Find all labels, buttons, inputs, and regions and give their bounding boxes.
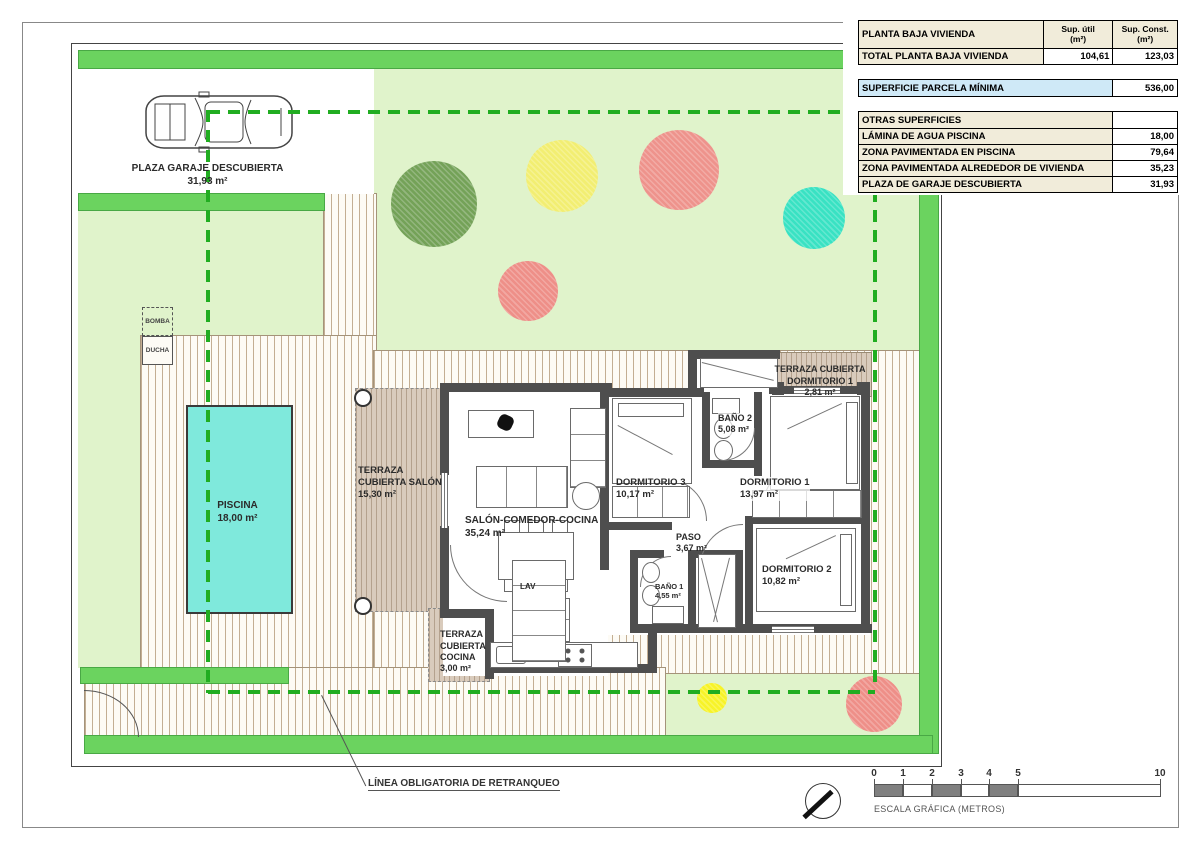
- table-section-vivienda: PLANTA BAJA VIVIENDA Sup. útil (m²) Sup.…: [858, 20, 1178, 65]
- floor-plan-sheet: BOMBA DUCHA: [0, 0, 1200, 850]
- setback-line-label: LÍNEA OBLIGATORIA DE RETRANQUEO: [368, 778, 560, 791]
- otras-row-value: 18,00: [1112, 129, 1177, 144]
- dorm1-label: DORMITORIO 1 13,97 m²: [740, 477, 810, 501]
- tree-circle: [783, 187, 845, 249]
- wall-segment: [648, 624, 657, 673]
- bano1-name: BAÑO 1: [655, 582, 683, 591]
- hedge-strip: [84, 735, 933, 754]
- tree-circle: [639, 130, 719, 210]
- dorm2-area: 10,82 m²: [762, 576, 832, 588]
- scale-tick-label: 2: [929, 768, 935, 779]
- pillow: [618, 403, 684, 417]
- scale-tick-label: 10: [1154, 768, 1165, 779]
- salon-label: SALÓN-COMEDOR-COCINA 35,24 m²: [465, 515, 598, 540]
- scale-segment: [874, 784, 903, 797]
- terrace-kitchen-area: 3,00 m²: [440, 663, 486, 674]
- terrace-kitchen-label: TERRAZA CUBIERTA COCINA 3,00 m²: [440, 618, 486, 686]
- table-section-parcela: SUPERFICIE PARCELA MÍNIMA 536,00: [858, 79, 1178, 97]
- bathroom-sink: [652, 606, 684, 624]
- bano2-area: 5,08 m²: [718, 424, 752, 435]
- dorm2-name: DORMITORIO 2: [762, 564, 832, 576]
- pump-box: BOMBA: [142, 307, 173, 336]
- pillow: [840, 534, 852, 606]
- pump-label: BOMBA: [145, 318, 170, 325]
- laundry-unit: [512, 560, 566, 662]
- dorm3-label: DORMITORIO 3 10,17 m²: [616, 477, 686, 501]
- scale-tick-label: 0: [871, 768, 877, 779]
- bathroom-sink: [712, 398, 740, 414]
- otras-row-value: 35,23: [1112, 161, 1177, 176]
- shower-box: DUCHA: [142, 336, 173, 365]
- pool-area: 18,00 m²: [186, 513, 289, 526]
- lav-name: LAV: [520, 582, 535, 591]
- dorm2-label: DORMITORIO 2 10,82 m²: [762, 564, 832, 588]
- dorm3-area: 10,17 m²: [616, 489, 686, 501]
- salon-name: SALÓN-COMEDOR-COCINA: [465, 515, 598, 528]
- garage-area: 31,93 m²: [95, 176, 320, 189]
- parcela-row: SUPERFICIE PARCELA MÍNIMA 536,00: [859, 80, 1177, 96]
- scale-tick-label: 4: [986, 768, 992, 779]
- bidet: [714, 440, 733, 461]
- setback-line-left: [206, 110, 210, 693]
- wall-segment: [600, 522, 672, 530]
- terrace-salon-area: 15,30 m²: [358, 489, 450, 501]
- wall-segment: [630, 550, 638, 633]
- wall-segment: [702, 392, 710, 468]
- pool-name: PISCINA: [186, 500, 289, 513]
- bano2-label: BAÑO 2 5,08 m²: [718, 413, 752, 436]
- parcela-label: SUPERFICIE PARCELA MÍNIMA: [859, 80, 1112, 96]
- hedge-strip: [78, 193, 325, 211]
- armchair: [572, 482, 600, 510]
- otras-row-label: ZONA PAVIMENTADA ALREDEDOR DE VIVIENDA: [859, 161, 1112, 176]
- paso-area: 3,67 m²: [676, 543, 707, 554]
- terrace-bedroom1-name: TERRAZA CUBIERTA DORMITORIO 1: [775, 364, 866, 385]
- tree-circle: [526, 140, 598, 212]
- scale-segment: [1018, 784, 1161, 797]
- otras-row-label: PLAZA DE GARAJE DESCUBIERTA: [859, 177, 1112, 192]
- terrace-column: [354, 389, 372, 407]
- otras-row: LÁMINA DE AGUA PISCINA 18,00: [859, 128, 1177, 144]
- scale-tick-label: 1: [900, 768, 906, 779]
- terrace-bedroom1-area: 2,81 m²: [768, 387, 872, 398]
- otras-row: ZONA PAVIMENTADA ALREDEDOR DE VIVIENDA 3…: [859, 160, 1177, 176]
- pillow: [846, 402, 858, 484]
- terrace-column: [354, 597, 372, 615]
- otras-row: ZONA PAVIMENTADA EN PISCINA 79,64: [859, 144, 1177, 160]
- parcela-value: 536,00: [1112, 80, 1177, 96]
- scale-tick-label: 3: [958, 768, 964, 779]
- otras-row-value: 79,64: [1112, 145, 1177, 160]
- lav-label: LAV: [520, 582, 535, 592]
- wall-segment: [630, 550, 664, 558]
- scale-tick-label: 5: [1015, 768, 1021, 779]
- bano1-label: BAÑO 1 4,55 m²: [655, 582, 683, 601]
- otras-row-label: LÁMINA DE AGUA PISCINA: [859, 129, 1112, 144]
- otras-row-label: ZONA PAVIMENTADA EN PISCINA: [859, 145, 1112, 160]
- bano1-area: 4,55 m²: [655, 591, 683, 600]
- scale-segment: [989, 784, 1018, 797]
- total-util-value: 104,61: [1043, 49, 1113, 64]
- table-header-util: Sup. útil (m²): [1043, 21, 1113, 48]
- tree-circle: [391, 161, 477, 247]
- table-header-main: PLANTA BAJA VIVIENDA: [859, 21, 1043, 48]
- dorm3-name: DORMITORIO 3: [616, 477, 686, 489]
- terrace-salon-label: TERRAZA CUBIERTA SALÓN 15,30 m²: [358, 453, 450, 512]
- otras-row-value: 31,93: [1112, 177, 1177, 192]
- otras-row: PLAZA DE GARAJE DESCUBIERTA 31,93: [859, 176, 1177, 192]
- otras-header: OTRAS SUPERFICIES: [859, 112, 1112, 128]
- window: [772, 626, 814, 633]
- wall-segment: [600, 522, 609, 570]
- setback-line-bottom: [208, 690, 875, 694]
- wall-segment: [440, 526, 449, 618]
- closet: [700, 358, 778, 388]
- terrace-kitchen-name: TERRAZA CUBIERTA COCINA: [440, 629, 486, 662]
- wall-segment: [688, 550, 696, 633]
- scale-segment: [932, 784, 961, 797]
- otras-header-row: OTRAS SUPERFICIES: [859, 112, 1177, 128]
- table-total-row: TOTAL PLANTA BAJA VIVIENDA 104,61 123,03: [859, 48, 1177, 64]
- pool-label: PISCINA 18,00 m²: [186, 500, 289, 525]
- bano2-name: BAÑO 2: [718, 413, 752, 424]
- total-const-value: 123,03: [1112, 49, 1177, 64]
- otras-header-empty: [1112, 112, 1177, 128]
- scale-segment: [961, 784, 989, 797]
- shelf-unit: [570, 408, 606, 488]
- tree-circle: [498, 261, 558, 321]
- setback-line-right: [873, 110, 877, 690]
- table-header-row: PLANTA BAJA VIVIENDA Sup. útil (m²) Sup.…: [859, 21, 1177, 48]
- paso-name: PASO: [676, 532, 707, 543]
- dorm1-area: 13,97 m²: [740, 489, 810, 501]
- hedge-strip: [78, 50, 939, 69]
- sofa: [476, 466, 568, 508]
- garage-name: PLAZA GARAJE DESCUBIERTA: [95, 163, 320, 176]
- wall-segment: [861, 386, 870, 633]
- dorm1-name: DORMITORIO 1: [740, 477, 810, 489]
- car-icon: [143, 90, 295, 154]
- lawn-area: [78, 210, 140, 668]
- tree-circle: [697, 683, 727, 713]
- wall-segment: [702, 460, 762, 468]
- wall-segment: [745, 516, 753, 633]
- table-header-const: Sup. Const. (m²): [1112, 21, 1177, 48]
- table-section-otras: OTRAS SUPERFICIES LÁMINA DE AGUA PISCINA…: [858, 111, 1178, 193]
- garage-label: PLAZA GARAJE DESCUBIERTA 31,93 m²: [95, 163, 320, 188]
- shower-label: DUCHA: [146, 347, 169, 354]
- toilet: [642, 562, 660, 583]
- terrace-bedroom1-label: TERRAZA CUBIERTA DORMITORIO 1 2,81 m²: [768, 353, 872, 409]
- scale-segment: [903, 784, 932, 797]
- hedge-strip: [80, 667, 289, 684]
- paso-label: PASO 3,67 m²: [676, 532, 707, 555]
- setback-line-top: [208, 110, 875, 114]
- scale-caption: ESCALA GRÁFICA (METROS): [874, 804, 1005, 814]
- total-label: TOTAL PLANTA BAJA VIVIENDA: [859, 49, 1043, 64]
- salon-area: 35,24 m²: [465, 528, 598, 541]
- terrace-salon-name: TERRAZA CUBIERTA SALÓN: [358, 465, 442, 488]
- wall-segment: [440, 383, 612, 392]
